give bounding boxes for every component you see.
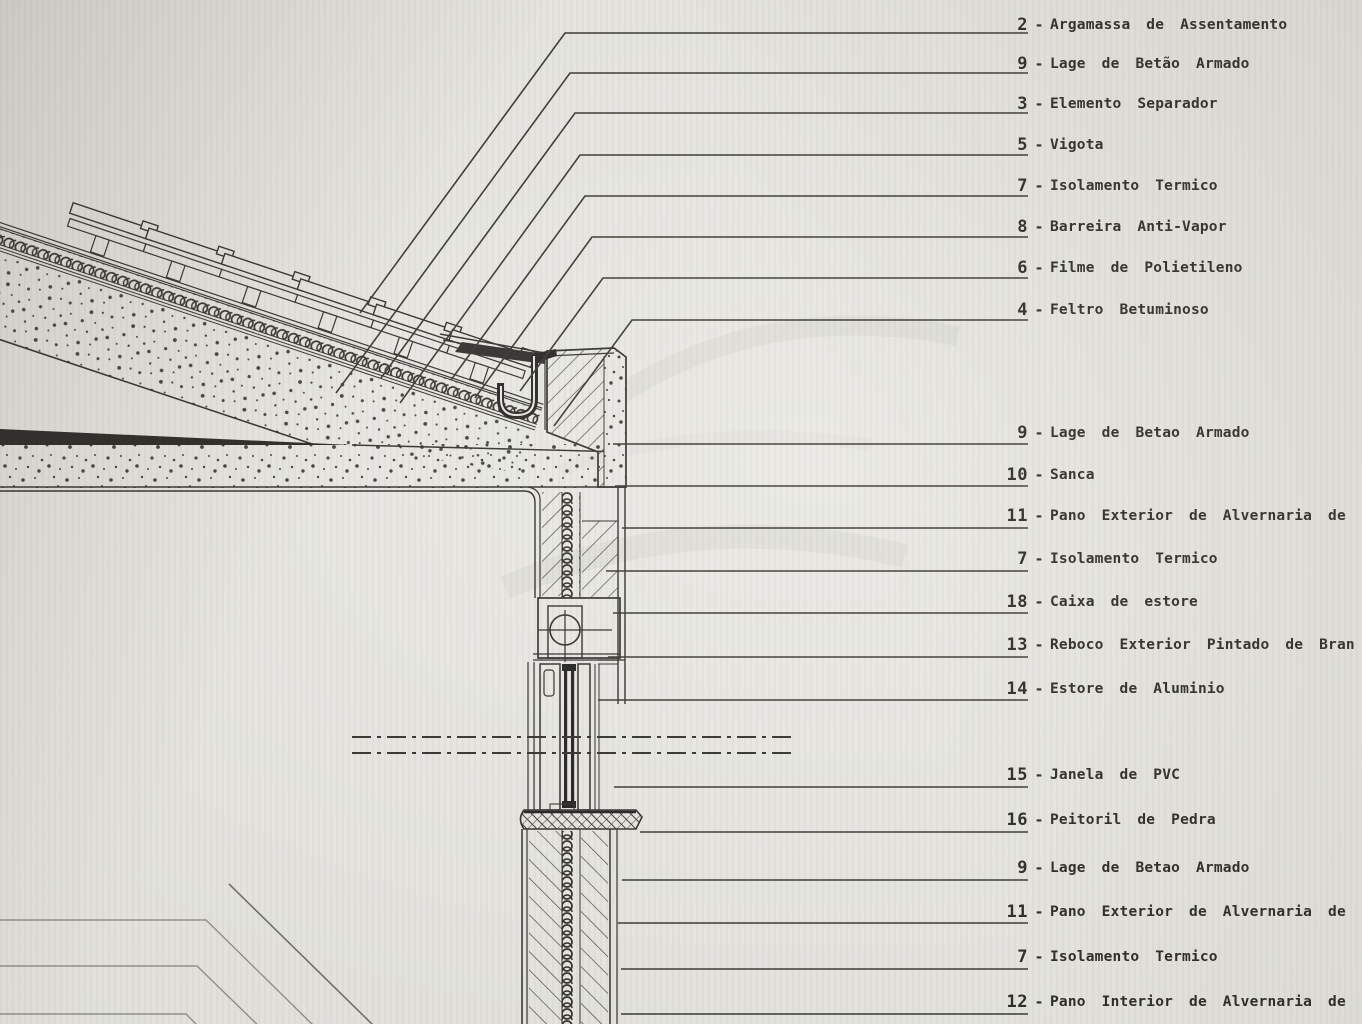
callout-dash: - xyxy=(1028,136,1050,154)
callout-text: Estore de Aluminio xyxy=(1050,681,1225,697)
callout-number: 8 xyxy=(966,217,1028,237)
callout-number: 13 xyxy=(966,635,1028,655)
callout-text: Pano Exterior de Alvernaria de "Tijolo d… xyxy=(1050,508,1362,524)
callout-row: 13-Reboco Exterior Pintado de Bran xyxy=(966,634,1362,656)
callout-row: 9-Lage de Betao Armado xyxy=(966,422,1362,444)
callout-row: 11-Pano Exterior de Alvernaria de "Tijol… xyxy=(966,901,1362,923)
callout-number: 11 xyxy=(966,506,1028,526)
callout-text: Peitoril de Pedra xyxy=(1050,812,1216,828)
callout-number: 9 xyxy=(966,423,1028,443)
callout-text: Isolamento Termico xyxy=(1050,949,1218,965)
callout-dash: - xyxy=(1028,636,1050,654)
callout-row: 3-Elemento Separador xyxy=(966,93,1362,115)
callout-row: 7-Isolamento Termico xyxy=(966,548,1362,570)
callout-row: 11-Pano Exterior de Alvernaria de "Tijol… xyxy=(966,505,1362,527)
callout-text: Filme de Polietileno xyxy=(1050,260,1243,276)
callout-row: 6-Filme de Polietileno xyxy=(966,257,1362,279)
callout-text: Feltro Betuminoso xyxy=(1050,302,1209,318)
callout-row: 2-Argamassa de Assentamento xyxy=(966,14,1362,36)
callout-text: Lage de Betao Armado xyxy=(1050,860,1250,876)
callout-number: 6 xyxy=(966,258,1028,278)
callout-dash: - xyxy=(1028,593,1050,611)
callout-text: Sanca xyxy=(1050,467,1095,483)
callout-dash: - xyxy=(1028,811,1050,829)
callout-number: 11 xyxy=(966,902,1028,922)
callout-text: Argamassa de Assentamento xyxy=(1050,17,1287,33)
callout-dash: - xyxy=(1028,903,1050,921)
callout-dash: - xyxy=(1028,948,1050,966)
callout-text: Isolamento Termico xyxy=(1050,551,1218,567)
callout-text: Elemento Separador xyxy=(1050,96,1218,112)
callout-dash: - xyxy=(1028,680,1050,698)
shutter-box xyxy=(533,598,620,662)
callout-row: 7-Isolamento Termico xyxy=(966,175,1362,197)
callout-dash: - xyxy=(1028,859,1050,877)
callout-dash: - xyxy=(1028,550,1050,568)
callout-number: 14 xyxy=(966,679,1028,699)
callout-number: 3 xyxy=(966,94,1028,114)
callout-text: Lage de Betão Armado xyxy=(1050,56,1250,72)
wall-insulation-lower xyxy=(562,831,579,1024)
callout-row: 8-Barreira Anti-Vapor xyxy=(966,216,1362,238)
lower-wall xyxy=(522,829,617,1024)
callout-row: 7-Isolamento Termico xyxy=(966,946,1362,968)
callout-text: Reboco Exterior Pintado de Bran xyxy=(1050,637,1355,653)
callout-row: 9-Lage de Betão Armado xyxy=(966,53,1362,75)
callout-number: 7 xyxy=(966,549,1028,569)
callout-row: 15-Janela de PVC xyxy=(966,764,1362,786)
callout-dash: - xyxy=(1028,301,1050,319)
leader-lines xyxy=(336,33,1028,1014)
callout-number: 9 xyxy=(966,858,1028,878)
callout-text: Pano Interior de Alvernaria de "Tijolo d… xyxy=(1050,994,1362,1010)
wall-leaf-exterior xyxy=(529,831,562,1024)
callout-text: Janela de PVC xyxy=(1050,767,1180,783)
callout-number: 15 xyxy=(966,765,1028,785)
callout-number: 5 xyxy=(966,135,1028,155)
callout-dash: - xyxy=(1028,218,1050,236)
callout-dash: - xyxy=(1028,177,1050,195)
callout-number: 12 xyxy=(966,992,1028,1012)
callout-number: 16 xyxy=(966,810,1028,830)
callout-number: 2 xyxy=(966,15,1028,35)
callout-number: 7 xyxy=(966,176,1028,196)
callout-text: Caixa de estore xyxy=(1050,594,1198,610)
callout-text: Vigota xyxy=(1050,137,1104,153)
callout-number: 7 xyxy=(966,947,1028,967)
callout-dash: - xyxy=(1028,259,1050,277)
wall-insulation-upper xyxy=(562,492,580,598)
callout-text: Lage de Betao Armado xyxy=(1050,425,1250,441)
callout-number: 9 xyxy=(966,54,1028,74)
callout-row: 18-Caixa de estore xyxy=(966,591,1362,613)
callout-dash: - xyxy=(1028,993,1050,1011)
callout-dash: - xyxy=(1028,16,1050,34)
wall-leaf-interior xyxy=(581,831,608,1024)
callout-text: Isolamento Termico xyxy=(1050,178,1218,194)
callout-row: 5-Vigota xyxy=(966,134,1362,156)
callout-dash: - xyxy=(1028,55,1050,73)
callout-number: 10 xyxy=(966,465,1028,485)
callout-row: 12-Pano Interior de Alvernaria de "Tijol… xyxy=(966,991,1362,1013)
callout-dash: - xyxy=(1028,766,1050,784)
upper-wall xyxy=(542,487,625,704)
callout-dash: - xyxy=(1028,95,1050,113)
callout-dash: - xyxy=(1028,507,1050,525)
callout-row: 10-Sanca xyxy=(966,464,1362,486)
faint-roof-lines xyxy=(0,884,374,1024)
callout-dash: - xyxy=(1028,424,1050,442)
callout-number: 18 xyxy=(966,592,1028,612)
callout-row: 16-Peitoril de Pedra xyxy=(966,809,1362,831)
callout-text: Pano Exterior de Alvernaria de "Tijolo d… xyxy=(1050,904,1362,920)
scanned-drawing-page: 2-Argamassa de Assentamento 9-Lage de Be… xyxy=(0,0,1362,1024)
callout-row: 9-Lage de Betao Armado xyxy=(966,857,1362,879)
callout-row: 14-Estore de Aluminio xyxy=(966,678,1362,700)
callout-dash: - xyxy=(1028,466,1050,484)
callout-number: 4 xyxy=(966,300,1028,320)
callout-text: Barreira Anti-Vapor xyxy=(1050,219,1227,235)
callout-row: 4-Feltro Betuminoso xyxy=(966,299,1362,321)
